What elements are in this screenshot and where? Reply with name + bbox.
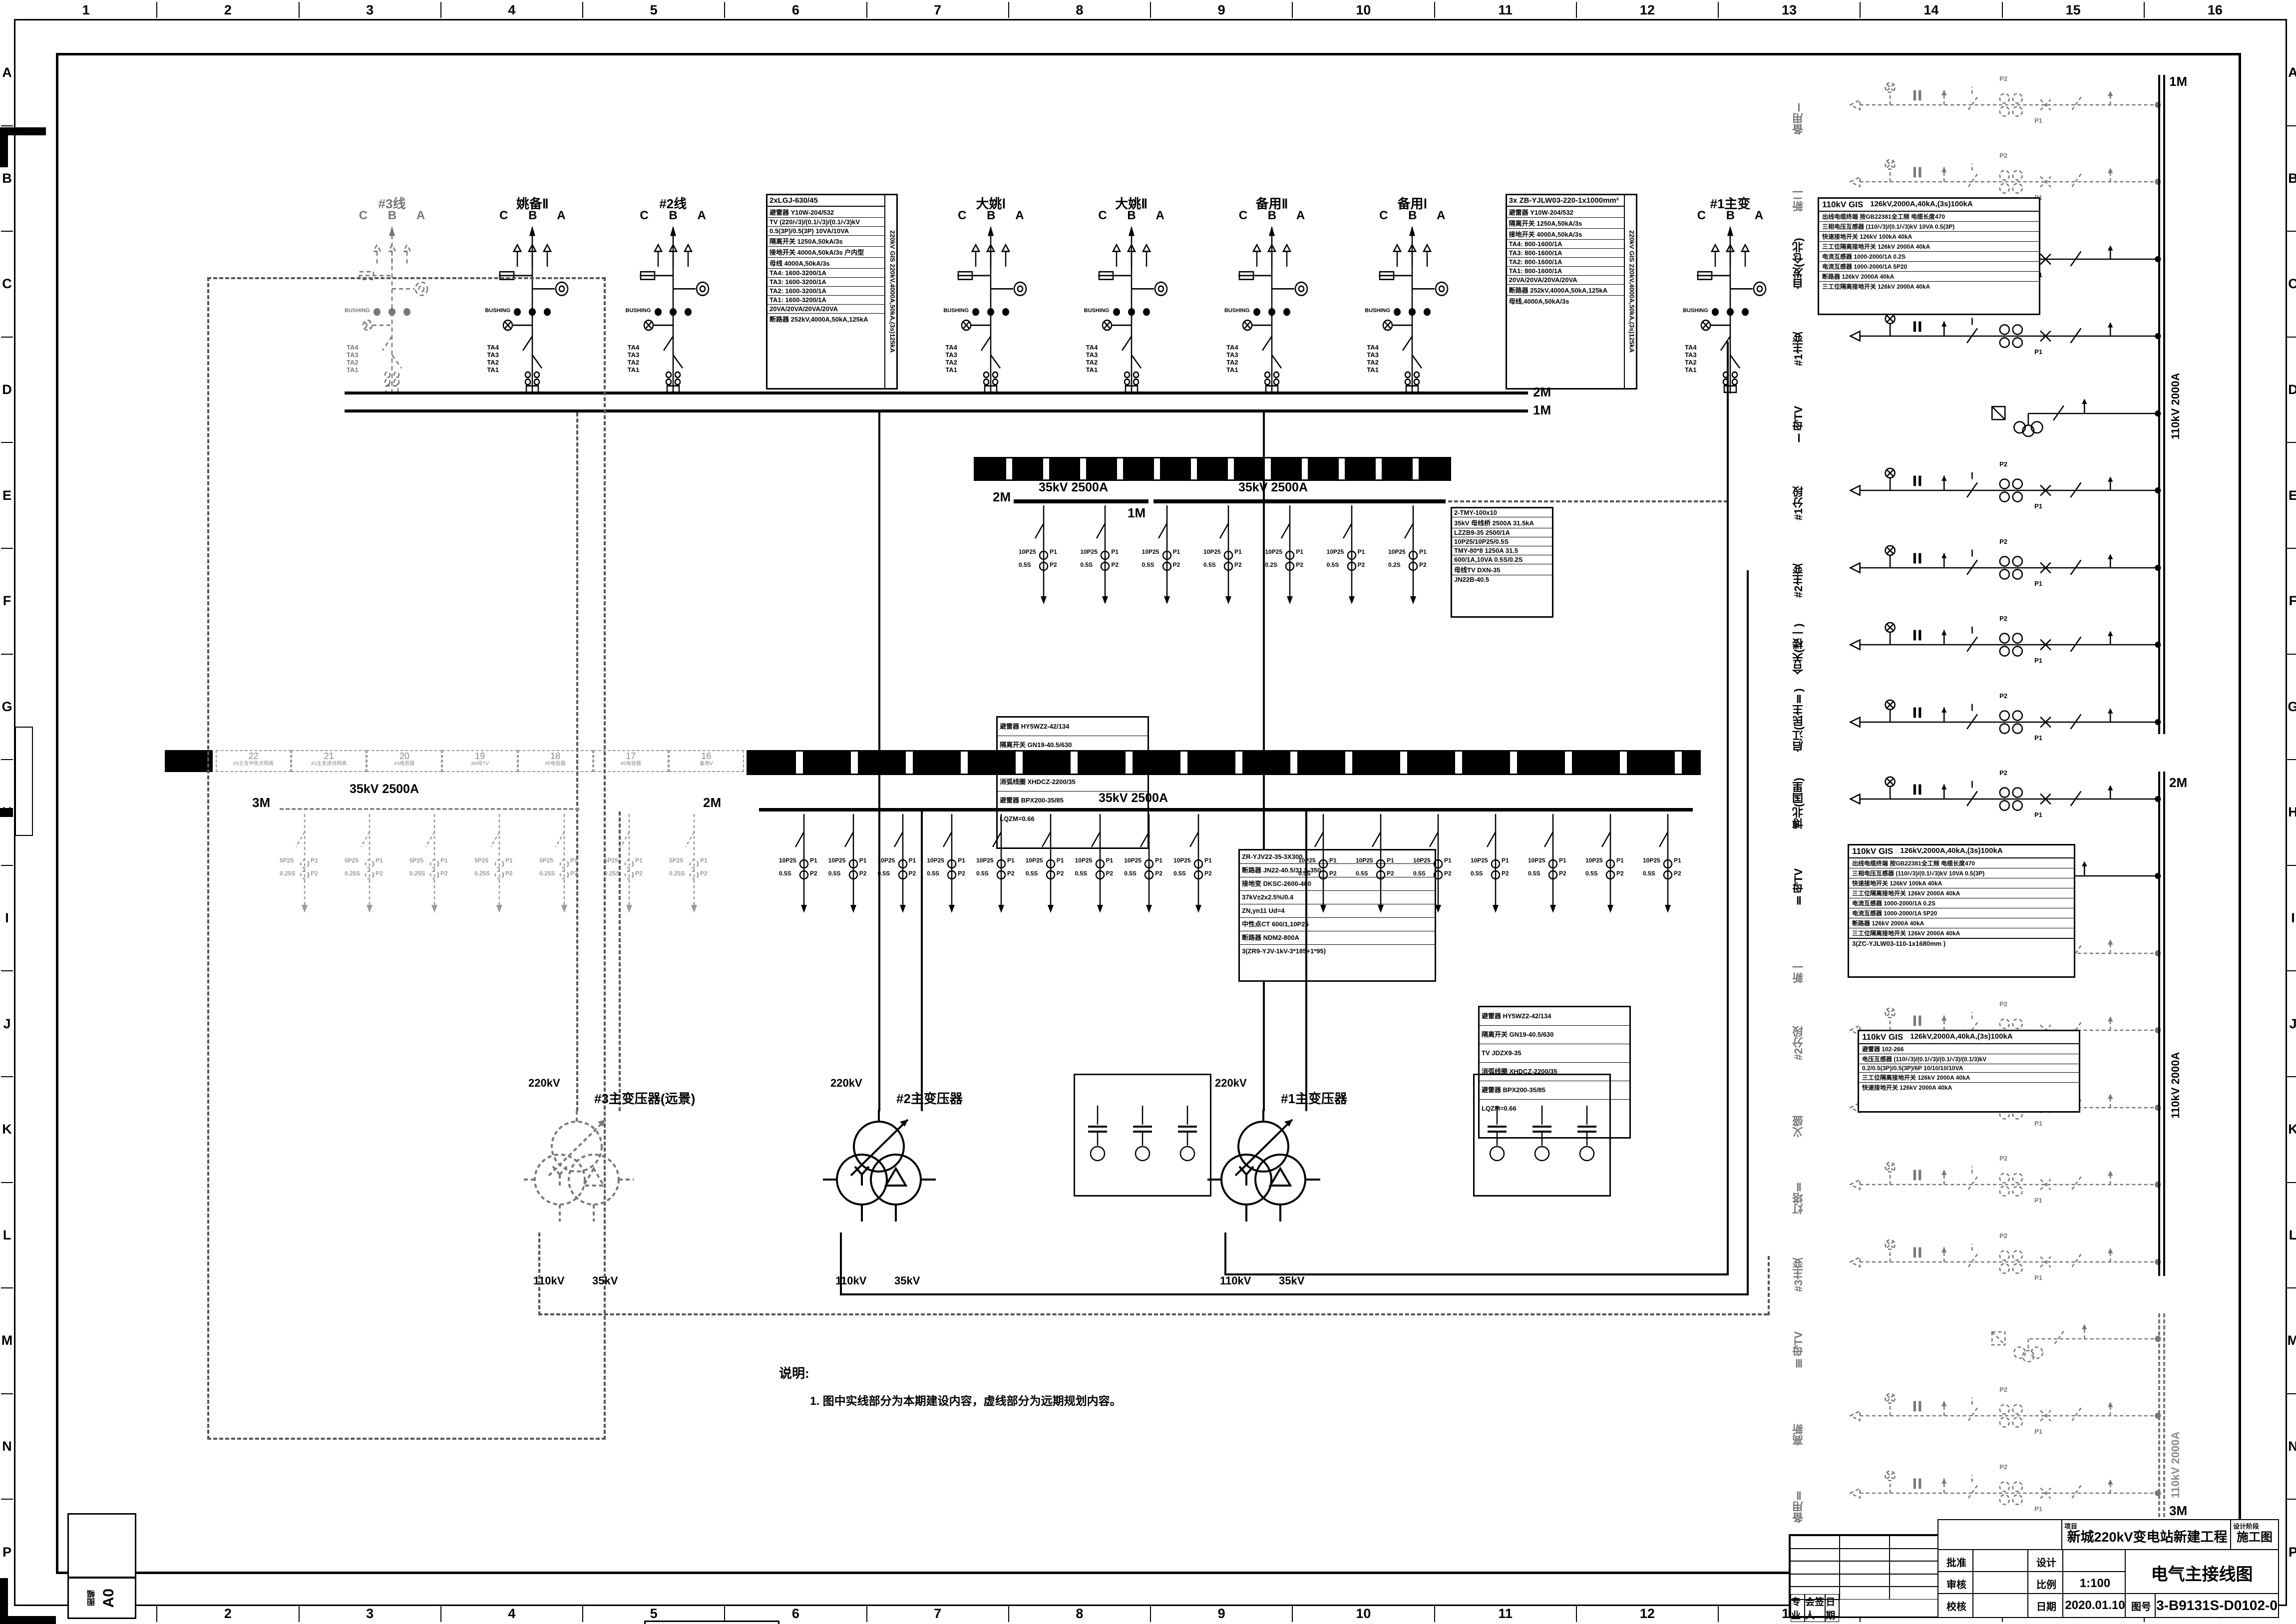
spec-line: 35kV 母线桥 2500A 31.5kA	[1452, 517, 1552, 528]
sign-cell-empty	[1840, 1549, 1889, 1562]
spec-line: TA1: 1600-3200/1A	[767, 296, 884, 305]
feeder-35kv: 10P25 0.5S P1 P2	[976, 814, 1021, 914]
phase-labels: C B A	[1224, 209, 1319, 223]
busbar-label-1m: 1M	[1533, 403, 1551, 418]
ruler-col-number: 4	[441, 2, 583, 18]
ct-p1-label: P1	[2034, 657, 2042, 664]
ct-p1-label: P1	[1106, 857, 1114, 864]
ct-class-label: 10P25	[1203, 548, 1221, 555]
ct-labels: TA4 TA3 TA2 TA1	[945, 344, 957, 374]
feeder-symbol	[986, 814, 1016, 914]
sign-cell-empty	[1890, 1587, 1939, 1600]
bay-110-symbol	[1843, 542, 2162, 594]
ct-p1-label: P1	[700, 857, 708, 864]
ct-class-label: 0.5S	[1585, 870, 1598, 877]
busbar-110-3m-label: 3M	[2169, 1503, 2187, 1519]
sheet-size-value: A0	[100, 1589, 117, 1608]
feeder-35kv: 10P25 0.5S P1 P2	[878, 814, 923, 914]
switchgear-strip-35kv-upper	[974, 457, 1451, 481]
ct-class-label: 10P25	[1327, 548, 1344, 555]
bay-label: #2线	[626, 194, 721, 209]
busbar-35-2m-label: 2M	[993, 489, 1011, 505]
ruler-row-letter: I	[2287, 866, 2296, 972]
bay-label: 备用Ⅱ	[1224, 194, 1319, 209]
busbar-110-2m-rating: 110kV 2000A	[2169, 959, 2182, 1119]
ct-class-label: 0.5S	[1356, 870, 1368, 877]
spec-line: 快速接地开关 126kV 100kA 40kA	[1849, 878, 2074, 888]
ct-class-label: 0.5S	[1173, 870, 1186, 877]
transformer-2-hv: 220kV	[830, 1077, 862, 1090]
ct-p1-label: P1	[2034, 348, 2042, 356]
ct-class-label: 0.5S	[828, 870, 841, 877]
ct-class-label: 10P25	[828, 857, 846, 864]
ct-p1-label: P1	[1419, 548, 1427, 555]
field-design-value	[2062, 1549, 2128, 1574]
ruler-col-number: 6	[725, 2, 867, 18]
ruler-col-number: 3	[300, 2, 441, 18]
bay-110kv: #3主变 P2 P1	[1788, 1232, 2162, 1292]
feeder-symbol	[1595, 814, 1625, 914]
ct-class-label: 10P25	[927, 857, 944, 864]
ct-p2-label: P2	[1234, 561, 1242, 568]
bay-110-symbol	[1843, 1390, 2162, 1442]
ct-p1-label: P1	[635, 857, 643, 864]
bushing-label: BUSHING	[1683, 308, 1708, 314]
ct-class-label: 5P25	[604, 857, 618, 864]
sign-col-header: 日期	[1825, 1594, 1839, 1622]
feeder-symbol	[1337, 505, 1367, 605]
ruler-col-number: 10	[1293, 1605, 1435, 1622]
ct-p2-label: P2	[1999, 1000, 2007, 1008]
field-check-value	[1972, 1593, 2030, 1618]
ct-p2-label: P2	[1616, 870, 1624, 877]
feeder-symbol	[1538, 814, 1568, 914]
spec-line: 600/1A,10VA 0.5S/0.2S	[1452, 555, 1552, 564]
ct-p2-label: P2	[1502, 870, 1509, 877]
spec-line: 0.5(3P)/0.5(3P) 10VA/10VA	[767, 227, 884, 236]
busbar-110-1m-label: 1M	[2169, 74, 2187, 89]
ct-p1-label: P1	[1007, 857, 1015, 864]
ruler-row-letter: A	[2287, 20, 2296, 126]
bay-110-symbol	[1843, 388, 2162, 439]
transformer-1-mv: 110kV	[1220, 1274, 1251, 1287]
ruler-col-number: 1	[15, 2, 157, 18]
ruler-col-number: 5	[583, 2, 725, 18]
spec-line: 快速接地开关 126kV 100kA 40kA	[1819, 232, 2039, 242]
sign-col-header: 会签人	[1805, 1594, 1825, 1622]
sign-cell-empty	[1890, 1549, 1939, 1562]
bay-220kv: 备用Ⅱ C B A BUSHING TA4 TA3 TA2 TA1	[1224, 194, 1319, 394]
bay-110kv: 灯塔Ⅱ P2 P1	[1788, 1155, 2162, 1215]
bay-110-label: 新二	[1791, 152, 1807, 212]
ct-p2-label: P2	[1999, 75, 2007, 82]
ct-p1-label: P1	[1057, 857, 1064, 864]
bay-110-symbol	[1843, 1313, 2162, 1365]
transformer-3-name: #3主变压器(远景)	[594, 1089, 695, 1107]
bay-110kv: Ⅰ母TV P2 P1	[1788, 384, 2162, 443]
busbar-110-2m-label: 2M	[2169, 775, 2187, 791]
notes-item: 1. 图中实线部分为本期建设内容，虚线部分为远期规划内容。	[810, 1391, 1122, 1408]
ct-p2-label: P2	[810, 870, 817, 877]
gis-rating: 126kV,2000A,40kA,(3s)100kA	[1910, 1032, 2012, 1042]
route-110-t1-h	[1224, 1273, 1729, 1275]
busbar-35-2m-lower-label: 2M	[703, 795, 721, 811]
switchgear-strip-end	[165, 750, 213, 772]
spec-110-gis-2: 110kV GIS 126kV,2000A,40kA,(3s)100kA 出线电…	[1848, 844, 2075, 978]
capacitor-bank-box	[1473, 1074, 1611, 1197]
sheet-size-box: 图幅 A0	[67, 1577, 136, 1619]
ct-p2-label: P2	[1387, 870, 1394, 877]
ct-class-label: 0.2S	[1265, 561, 1277, 568]
ct-class-label: 10P25	[1528, 857, 1545, 864]
bay-220kv: 大姚Ⅱ C B A BUSHING TA4 TA3 TA2 TA1	[1084, 194, 1179, 394]
cell-caption: 备用Ⅴ	[670, 761, 743, 767]
spec-line: 0.2/0.5(3P)/0.5(3P)/6P 10/10/10/10VA	[1859, 1064, 2079, 1073]
ct-p2-label: P2	[1358, 561, 1365, 568]
ct-p2-label: P2	[1999, 1463, 2007, 1471]
feeder-symbol	[1653, 814, 1683, 914]
ruler-row-letter: G	[2287, 655, 2296, 761]
ruler-col-number: 13	[1719, 2, 1861, 18]
ct-p2-label: P2	[1999, 1155, 2007, 1162]
field-check-label: 校核	[1937, 1593, 1975, 1618]
ct-p1-label: P1	[1616, 857, 1624, 864]
spec-35-busbridge: 2-TMY-100x1035kV 母线桥 2500A 31.5kALZZB9-3…	[1451, 507, 1553, 618]
spec-line: 断路器 252kV,4000A,50kA,125kA	[767, 314, 884, 324]
feeder-symbol	[679, 814, 709, 914]
feeder-35kv: 10P25 0.5S P1 P2	[1585, 814, 1635, 914]
capacitor-icon	[1125, 1103, 1160, 1168]
ct-p2-label: P2	[700, 870, 708, 877]
spec-line: 断路器 252kV,4000A,50kA,125kA	[1507, 285, 1624, 296]
transformer-symbol	[517, 1109, 637, 1223]
ct-p2-label: P2	[1057, 870, 1064, 877]
spec-line: TV (220/√3)/(0.1/√3)/(0.1/√3)kV	[767, 218, 884, 227]
spec-line: 电流互感器 1000-2000/1A 0.2S	[1819, 252, 2039, 262]
busbar-35kv-1m	[1153, 499, 1446, 503]
ct-class-label: 10P25	[1173, 857, 1191, 864]
sign-col-header: 专业	[1791, 1594, 1805, 1622]
ct-p1-label: P1	[1050, 548, 1057, 555]
spec-line: 避雷器 102-266	[1859, 1044, 2079, 1054]
ct-labels: TA4 TA3 TA2 TA1	[1367, 344, 1379, 374]
ct-class-label: 0.5S	[1471, 870, 1483, 877]
ruler-col-number: 8	[1009, 2, 1151, 18]
ct-p1-label: P1	[1204, 857, 1212, 864]
title-project: 项目 新城220kV变电站新建工程	[2061, 1519, 2233, 1552]
ct-class-label: 10P25	[1356, 857, 1373, 864]
field-date-value: 2020.01.10	[2062, 1593, 2128, 1618]
capacitor-icon	[1569, 1103, 1604, 1168]
field-review-label: 审核	[1937, 1571, 1975, 1596]
bay-110kv: 启江(民主Ⅱ) P2 P1	[1788, 692, 2162, 752]
feeder-symbol	[1152, 505, 1182, 605]
title-stage: 设计阶段 施工图	[2230, 1519, 2279, 1552]
bushing-label: BUSHING	[1224, 308, 1250, 314]
spec-line: 避雷器 Y10W-204/532	[767, 207, 884, 218]
ct-class-label: 10P25	[1075, 857, 1093, 864]
bay-110-symbol	[1843, 79, 2162, 131]
feeder-35kv: 10P25 0.5S P1 P2	[1026, 814, 1071, 914]
feeder-35kv: 10P25 0.5S P1 P2	[1643, 814, 1693, 914]
ct-class-label: 10P25	[1026, 857, 1043, 864]
feeder-35kv: 10P25 0.2S P1 P2	[1265, 505, 1315, 605]
ct-p2-label: P2	[1007, 870, 1015, 877]
ct-p1-label: P1	[1155, 857, 1162, 864]
spec-line: 隔离开关 1250A,50kA/3s	[1507, 218, 1624, 229]
spec-line: TMY-80*8 1250A 31.5	[1452, 546, 1552, 555]
spec-line: 断路器 126kV 2000A 40kA	[1849, 918, 2074, 928]
ct-class-label: 10P25	[1413, 857, 1431, 864]
bay-110kv: 博北(国里) P2 P1	[1788, 769, 2162, 829]
ruler-col-number: 9	[1151, 1605, 1293, 1622]
phase-labels: C B A	[1084, 209, 1179, 223]
feeder-35kv: 10P25 0.5S P1 P2	[1019, 505, 1069, 605]
feeder-35kv: 10P25 0.5S P1 P2	[1142, 505, 1192, 605]
ct-p1-label: P1	[1358, 548, 1365, 555]
busbar-35-2m-rating: 35kV 2500A	[1039, 480, 1108, 495]
route-110-t3-v	[538, 1232, 540, 1315]
busbar-35kv-future-ext	[1448, 500, 1728, 502]
ruler-row-letter: J	[1, 971, 13, 1077]
feeders-35kv-upper: 10P25 0.5S P1 P2 10P25 0.5S P1 P2 10P25 …	[1019, 505, 1438, 605]
feeder-35kv: 10P25 0.5S P1 P2	[1471, 814, 1521, 914]
spec-line: TA4: 800-1600/1A	[1507, 240, 1624, 249]
ct-class-label: 10P25	[1585, 857, 1603, 864]
ct-p2-label: P2	[1999, 769, 2007, 777]
field-dwgno-value: 33-B9131S-D0102-01	[2155, 1593, 2279, 1618]
bay-220kv: #1主变 C B A BUSHING TA4 TA3 TA2 TA1	[1683, 194, 1778, 394]
ruler-row-letter: M	[2287, 1288, 2296, 1394]
ct-p1-label: P1	[859, 857, 867, 864]
ct-p1-label: P1	[1296, 548, 1303, 555]
feeder-symbol	[1029, 505, 1059, 605]
bay-label: #3线	[345, 194, 439, 209]
ct-p1-label: P1	[958, 857, 965, 864]
field-date-label: 日期	[2027, 1593, 2065, 1618]
spec-heading: 2xLGJ-630/45	[767, 195, 884, 207]
ruler-col-number: 7	[867, 1605, 1009, 1622]
ruler-row-letter: I	[1, 866, 13, 972]
transformer-1-hv: 220kV	[1215, 1077, 1247, 1090]
feeder-symbol	[1134, 814, 1164, 914]
bay-110-label: 启江(民主Ⅱ)	[1791, 692, 1807, 752]
ct-p2-label: P2	[1050, 561, 1057, 568]
ruler-row-letter: L	[1, 1183, 13, 1289]
capacitor-icon	[1480, 1103, 1515, 1168]
ct-p2-label: P2	[1999, 538, 2007, 545]
spec-line: TV JDZX9-35	[1480, 1044, 1629, 1063]
feeder-35kv: 10P25 0.5S P1 P2	[779, 814, 824, 914]
margin-stamp-strip	[15, 727, 33, 836]
ct-p1-label: P1	[1329, 857, 1337, 864]
gis-title: 110kV GIS	[1862, 1032, 1903, 1042]
bay-110kv: 备用Ⅰ P2 P1	[1788, 75, 2162, 135]
bay-110-symbol	[1843, 1236, 2162, 1288]
bay-110-label: 博北(国里)	[1791, 769, 1807, 829]
ct-p2-label: P2	[1999, 460, 2007, 468]
feeder-symbol	[1308, 814, 1338, 914]
field-approve-value	[1972, 1549, 2030, 1574]
ct-p1-label: P1	[1387, 857, 1394, 864]
feeder-symbol	[1213, 505, 1243, 605]
transformer-3-hv: 220kV	[528, 1077, 560, 1090]
spec-line: 2-TMY-100x10	[1452, 508, 1552, 517]
ct-p1-label: P1	[1444, 857, 1452, 864]
sign-cell-empty	[1890, 1536, 1939, 1549]
spec-line: TA3: 800-1600/1A	[1507, 249, 1624, 258]
feeders-35kv-lower-b: 10P25 0.5S P1 P2 10P25 0.5S P1 P2 10P25 …	[1298, 814, 1693, 914]
bay-110-label: #2分段	[1791, 1000, 1807, 1060]
feeders-35kv-lower-a: 10P25 0.5S P1 P2 10P25 0.5S P1 P2 10P25 …	[779, 814, 1218, 914]
ct-p2-label: P2	[635, 870, 643, 877]
ruler-col-number: 5	[583, 1605, 725, 1622]
center-mark	[0, 808, 13, 817]
busbar-35kv-2m	[1014, 499, 1148, 503]
spec-line: 3(ZR9-YJV-1kV-3*185+1*95)	[1240, 945, 1435, 958]
ct-p2-label: P2	[1999, 615, 2007, 622]
sign-cell-empty	[1840, 1587, 1889, 1600]
phase-labels: C B A	[626, 209, 721, 223]
ct-class-label: 10P25	[1019, 548, 1036, 555]
sign-cell-empty	[1890, 1561, 1939, 1574]
feeder-symbol	[888, 814, 918, 914]
ct-class-label: 0.25S	[669, 870, 685, 877]
feeder-35kv: 10P25 0.5S P1 P2	[1327, 505, 1377, 605]
ct-class-label: 10P25	[779, 857, 796, 864]
field-design-label: 设计	[2027, 1549, 2065, 1574]
drawing-sheet: 12345678910111213141516 1234567891011121…	[0, 0, 2296, 1624]
ct-p2-label: P2	[1204, 870, 1212, 877]
ruler-row-letter: D	[1, 338, 13, 443]
bushing-label: BUSHING	[1084, 308, 1110, 314]
transformer-1-lv: 35kV	[1279, 1274, 1304, 1287]
ruler-row-letter: H	[2287, 760, 2296, 866]
ct-p1-label: P1	[2034, 502, 2042, 510]
sign-cell-empty	[1790, 1536, 1840, 1549]
spec-220-main: 2xLGJ-630/45 避雷器 Y10W-204/532TV (220/√3)…	[766, 194, 898, 390]
spec-side-label: 220kV GIS 220kV,4000A,50kA,(3s)125kA	[884, 195, 896, 388]
ruler-row-letter: E	[1, 443, 13, 549]
ct-p1-label: P1	[2034, 811, 2042, 818]
spec-line: TA3: 1600-3200/1A	[767, 278, 884, 287]
ct-class-label: 0.5S	[1528, 870, 1540, 877]
sign-cell-empty	[1790, 1549, 1840, 1562]
busbar-110-3m-rating: 110kV 2000A	[2169, 1348, 2182, 1498]
spec-line: 母线TV DXN-35	[1452, 564, 1552, 575]
ct-class-label: 0.5S	[1026, 870, 1038, 877]
route-110-t3-h	[538, 1313, 1768, 1315]
ct-class-label: 0.5S	[1080, 561, 1093, 568]
ct-p2-label: P2	[1419, 561, 1427, 568]
spec-line: 接地开关 4000A,50kA/3s	[1507, 229, 1624, 240]
field-scale-value: 1:100	[2062, 1571, 2128, 1596]
bay-110-symbol	[1843, 310, 2162, 362]
ct-p2-label: P2	[1999, 692, 2007, 700]
ct-p1-label: P1	[1234, 548, 1242, 555]
ruler-row-letter: M	[1, 1288, 13, 1394]
busbar-35-1m-rating: 35kV 2500A	[1238, 480, 1308, 495]
bay-220kv: 备用Ⅰ C B A BUSHING TA4 TA3 TA2 TA1	[1365, 194, 1460, 394]
ct-class-label: 0.5S	[1298, 870, 1311, 877]
ct-p2-label: P2	[958, 870, 965, 877]
ruler-col-number: 6	[725, 1605, 867, 1622]
bay-220kv: #2线 C B A BUSHING TA4 TA3 TA2 TA1	[626, 194, 721, 394]
feeder-symbol	[1423, 814, 1453, 914]
spec-line: 母线,4000A,50kA/3s	[1507, 296, 1624, 306]
spec-line: 隔离开关 1250A,50kA/3s	[767, 236, 884, 247]
spec-line: 避雷器 HY5WZ2-42/134	[998, 718, 1148, 736]
feeder-35kv: 10P25 0.5S P1 P2	[1528, 814, 1578, 914]
feeder-35kv: 10P25 0.5S P1 P2	[1413, 814, 1463, 914]
ruler-right: ABCDEFGHIJKLMNP	[2287, 20, 2296, 1605]
ruler-col-number: 15	[2003, 2, 2145, 18]
bay-110-label: Ⅰ母TV	[1791, 384, 1807, 443]
feeder-35kv: 10P25 0.5S P1 P2	[1075, 814, 1120, 914]
feeder-35kv: 10P25 0.5S P1 P2	[1203, 505, 1253, 605]
busbar-110kv-1m	[2158, 75, 2165, 734]
spec-line: 三工位隔离接地开关 126kV 2000A 40kA	[1849, 888, 2074, 898]
transformer-1	[1203, 1109, 1323, 1223]
sign-table: 专业会签人日期	[1789, 1534, 1940, 1618]
feeder-symbol	[1398, 505, 1428, 605]
bay-110-symbol	[1843, 773, 2162, 825]
bay-label: 姚备Ⅱ	[485, 194, 580, 209]
bushing-label: BUSHING	[943, 308, 969, 314]
bay-110-label: 高新	[1791, 1386, 1807, 1446]
notes-heading: 说明:	[779, 1363, 809, 1382]
drop-35kv-t1	[1305, 812, 1307, 1111]
spec-line: 隔离开关 GN19-40.5/630	[1480, 1026, 1629, 1044]
feeder-symbol	[789, 814, 819, 914]
gis-title: 110kV GIS	[1822, 200, 1863, 210]
spec-line: TA2: 1600-3200/1A	[767, 287, 884, 296]
spec-line: TA2: 800-1600/1A	[1507, 258, 1624, 267]
route-110-t2-riser	[1747, 570, 1749, 1295]
transformer-3-lv: 35kV	[592, 1274, 618, 1287]
spec-110-pt: 110kV GIS 126kV,2000A,40kA,(3s)100kA 避雷器…	[1858, 1030, 2080, 1113]
switchgear-strip-35kv-lower	[747, 750, 1701, 775]
capacitor-bank-box	[1074, 1074, 1211, 1197]
spec-line: 三相电压互感器 (110/√3)/(0.1/√3)kV 10VA 0.5(3P)	[1849, 868, 2074, 878]
spec-line: LZZB9-35 2500/1A	[1452, 528, 1552, 537]
feeder-symbol	[1366, 814, 1396, 914]
phase-labels: C B A	[1683, 209, 1778, 223]
ruler-row-letter: L	[2287, 1183, 2296, 1289]
ruler-row-letter: C	[1, 232, 13, 338]
sign-cell-empty	[1790, 1561, 1840, 1574]
ruler-row-letter: E	[2287, 443, 2296, 549]
ruler-row-letter: F	[2287, 549, 2296, 655]
spec-line: 10P25/10P25/0.5S	[1452, 537, 1552, 546]
ct-p2-label: P2	[1999, 152, 2007, 159]
bay-220kv: 大姚Ⅰ C B A BUSHING TA4 TA3 TA2 TA1	[943, 194, 1038, 394]
ruler-col-number: 10	[1293, 2, 1435, 18]
sign-cell-empty	[1840, 1536, 1889, 1549]
ct-p2-label: P2	[1296, 561, 1303, 568]
phase-labels: C B A	[1365, 209, 1460, 223]
capacitor-icon	[1525, 1103, 1559, 1168]
spec-line: 三工位隔离接地开关 126kV 2000A 40kA	[1859, 1073, 2079, 1083]
ruler-top: 12345678910111213141516	[15, 2, 2286, 18]
ruler-col-number: 8	[1009, 1605, 1151, 1622]
transformer-2-lv: 35kV	[894, 1274, 920, 1287]
route-110-t1-riser	[1727, 342, 1729, 1275]
spec-heading: 3x ZB-YJLW03-220-1x1000mm²	[1507, 195, 1624, 207]
ruler-col-number: 12	[1577, 1605, 1719, 1622]
feeder-symbol	[1183, 814, 1213, 914]
ruler-row-letter: N	[2287, 1394, 2296, 1500]
